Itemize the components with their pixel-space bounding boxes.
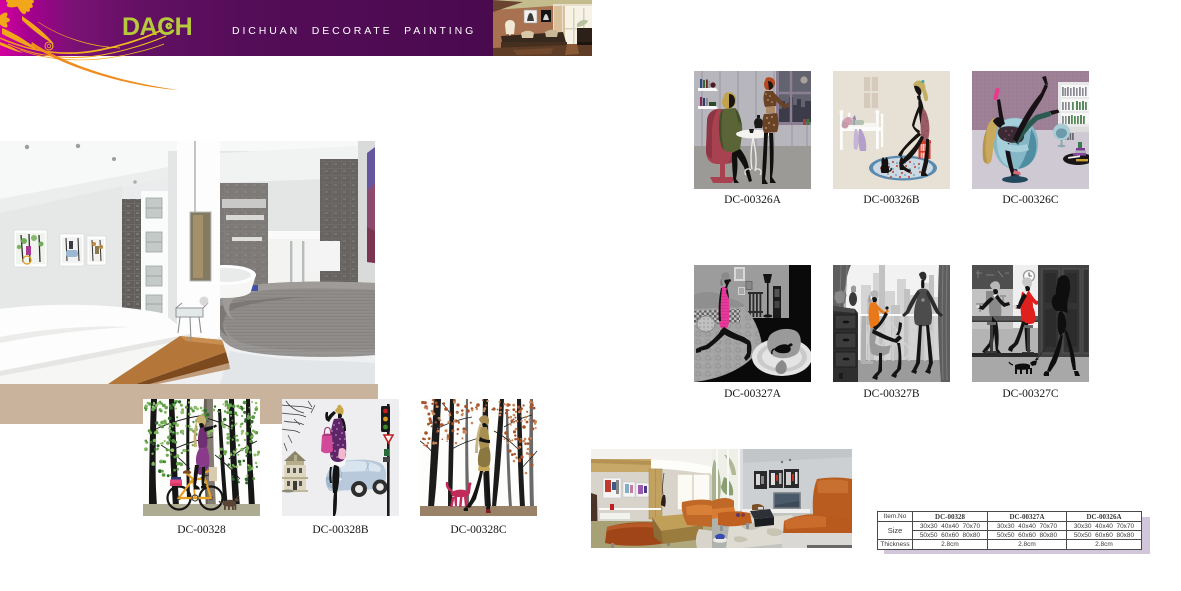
- svg-text:DACH: DACH: [122, 13, 192, 39]
